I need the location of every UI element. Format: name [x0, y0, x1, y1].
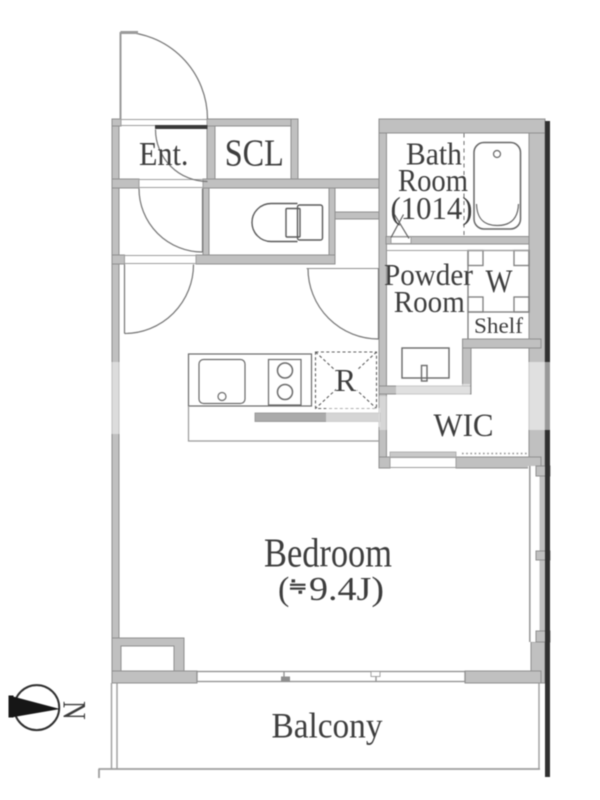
- svg-text:W: W: [486, 264, 514, 300]
- svg-text:(1014): (1014): [391, 190, 473, 226]
- svg-text:(: (: [278, 571, 289, 608]
- svg-text:SCL: SCL: [225, 133, 284, 175]
- svg-text:9.4J): 9.4J): [309, 571, 384, 608]
- svg-text:WIC: WIC: [434, 408, 494, 444]
- svg-text:Ent.: Ent.: [139, 136, 189, 173]
- svg-text:Balcony: Balcony: [272, 706, 383, 746]
- svg-text:Room: Room: [394, 284, 465, 319]
- svg-text:Shelf: Shelf: [474, 313, 524, 338]
- svg-text:N: N: [56, 701, 91, 720]
- svg-text:R: R: [335, 362, 357, 398]
- svg-text:Bedroom: Bedroom: [264, 530, 392, 576]
